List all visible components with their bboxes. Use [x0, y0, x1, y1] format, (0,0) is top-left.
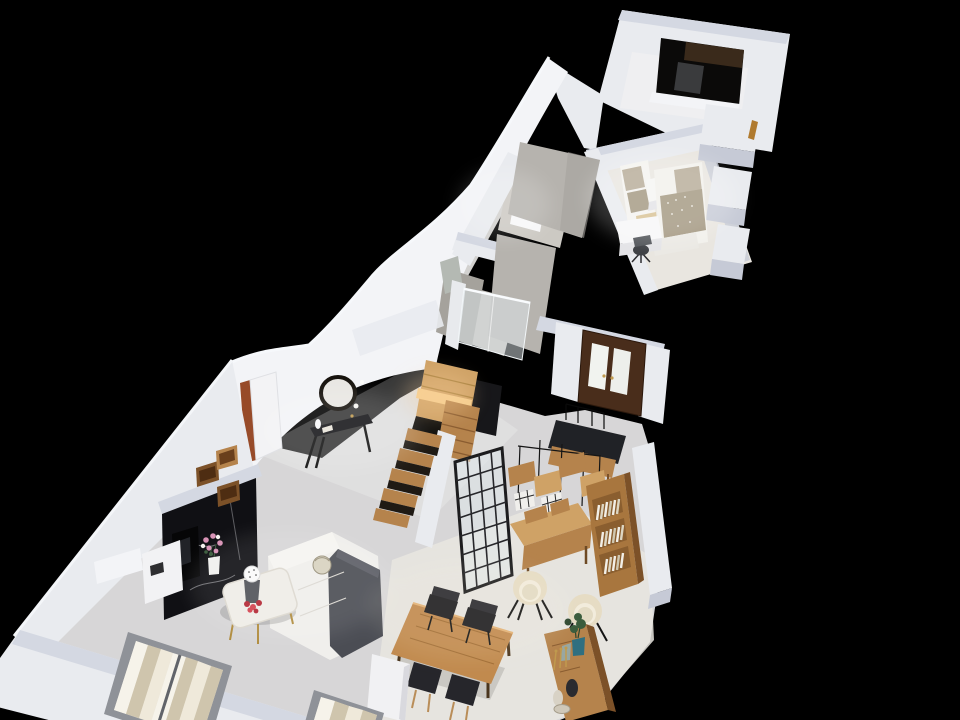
gray-unit — [674, 62, 704, 94]
render-viewport[interactable] — [0, 0, 960, 720]
light-vase — [553, 690, 563, 706]
teal-vase — [572, 637, 585, 656]
living-light — [190, 530, 390, 640]
round-tray — [554, 705, 570, 714]
hallway-light — [260, 390, 420, 470]
wall-sconce — [360, 380, 364, 384]
door-handle-left — [602, 374, 605, 377]
dining-light — [370, 560, 570, 660]
corridor-light — [460, 170, 550, 240]
stair-warm-light — [403, 373, 473, 417]
dark-vase — [566, 679, 578, 697]
apartment-dollhouse-render[interactable] — [0, 0, 960, 720]
bedroom-light — [587, 153, 737, 243]
door-handle-right — [610, 376, 613, 379]
right-wall-slab-c — [712, 224, 750, 264]
